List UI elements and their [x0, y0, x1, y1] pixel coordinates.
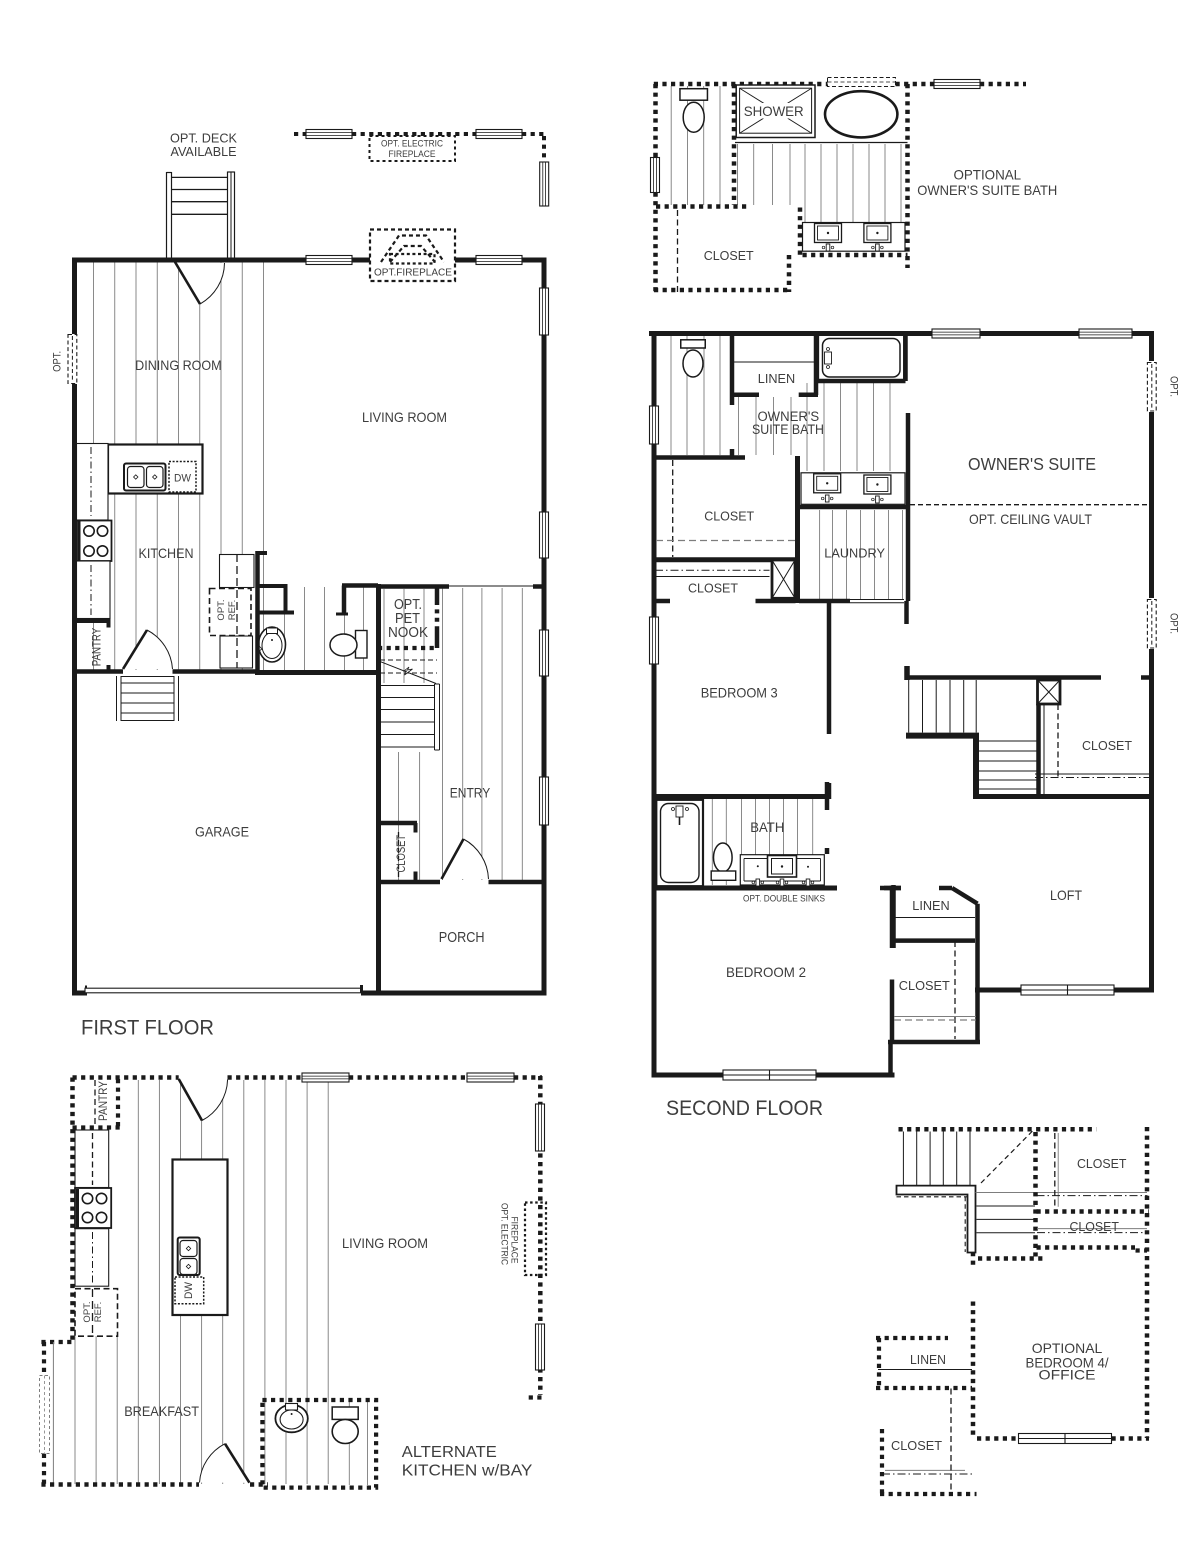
svg-text:OPT. ELECTRIC: OPT. ELECTRIC [499, 1203, 510, 1265]
svg-text:OPT.: OPT. [216, 599, 227, 620]
svg-text:SECOND FLOOR: SECOND FLOOR [666, 1097, 823, 1120]
svg-text:FIRST FLOOR: FIRST FLOOR [81, 1017, 214, 1040]
svg-text:AVAILABLE: AVAILABLE [171, 144, 237, 159]
svg-text:PORCH: PORCH [439, 930, 485, 946]
svg-text:REF.: REF. [93, 1302, 104, 1323]
svg-text:OPTIONAL: OPTIONAL [1032, 1341, 1103, 1356]
svg-text:BEDROOM 2: BEDROOM 2 [726, 965, 806, 980]
svg-text:CLOSET: CLOSET [688, 581, 738, 596]
svg-text:OPTIONAL: OPTIONAL [953, 168, 1021, 183]
svg-text:KITCHEN: KITCHEN [139, 546, 194, 561]
svg-text:CLOSET: CLOSET [891, 1438, 942, 1453]
svg-text:OPT.FIREPLACE: OPT.FIREPLACE [374, 267, 452, 279]
svg-text:LIVING ROOM: LIVING ROOM [362, 410, 447, 425]
svg-text:GARAGE: GARAGE [195, 825, 249, 840]
svg-text:BEDROOM 3: BEDROOM 3 [701, 686, 778, 701]
svg-text:LIVING ROOM: LIVING ROOM [342, 1236, 428, 1251]
svg-text:OPT.: OPT. [52, 351, 64, 372]
svg-text:LAUNDRY: LAUNDRY [824, 546, 885, 561]
svg-text:FIREPLACE: FIREPLACE [509, 1217, 520, 1264]
svg-text:BATH: BATH [750, 819, 784, 835]
svg-text:CLOSET: CLOSET [704, 248, 754, 263]
svg-text:CLOSET: CLOSET [1077, 1156, 1127, 1171]
svg-text:CLOSET: CLOSET [394, 834, 408, 872]
svg-text:CLOSET: CLOSET [704, 509, 754, 524]
svg-text:FIREPLACE: FIREPLACE [389, 149, 436, 160]
svg-text:OPT.: OPT. [82, 1301, 93, 1322]
svg-text:OPT. ELECTRIC: OPT. ELECTRIC [381, 139, 443, 150]
svg-text:PANTRY: PANTRY [89, 628, 103, 667]
svg-text:LINEN: LINEN [912, 899, 950, 913]
svg-text:OWNER'S SUITE BATH: OWNER'S SUITE BATH [917, 183, 1057, 198]
svg-text:ENTRY: ENTRY [450, 785, 491, 801]
svg-text:OFFICE: OFFICE [1039, 1368, 1096, 1383]
svg-text:LINEN: LINEN [910, 1353, 946, 1367]
svg-text:CLOSET: CLOSET [899, 978, 950, 993]
svg-text:ALTERNATE: ALTERNATE [402, 1444, 497, 1461]
svg-text:DW: DW [183, 1281, 195, 1299]
svg-text:PANTRY: PANTRY [96, 1081, 110, 1121]
svg-text:CLOSET: CLOSET [1069, 1219, 1119, 1234]
svg-text:DW: DW [174, 473, 192, 485]
svg-text:LOFT: LOFT [1050, 887, 1082, 903]
svg-text:REF.: REF. [227, 600, 238, 621]
svg-text:NOOK: NOOK [388, 625, 428, 641]
svg-text:BREAKFAST: BREAKFAST [124, 1404, 199, 1419]
svg-text:OWNER'S SUITE: OWNER'S SUITE [968, 454, 1096, 474]
svg-text:OPT.: OPT. [1168, 376, 1180, 397]
svg-text:KITCHEN w/BAY: KITCHEN w/BAY [402, 1463, 533, 1480]
svg-text:OPT.: OPT. [1168, 613, 1180, 634]
svg-text:OPT. DOUBLE SINKS: OPT. DOUBLE SINKS [743, 893, 825, 904]
svg-text:SUITE BATH: SUITE BATH [752, 422, 824, 437]
svg-text:SHOWER: SHOWER [744, 104, 804, 119]
svg-text:LINEN: LINEN [758, 372, 795, 386]
svg-text:DINING ROOM: DINING ROOM [135, 358, 222, 373]
svg-text:CLOSET: CLOSET [1082, 738, 1132, 753]
svg-text:OPT. CEILING VAULT: OPT. CEILING VAULT [969, 512, 1093, 527]
